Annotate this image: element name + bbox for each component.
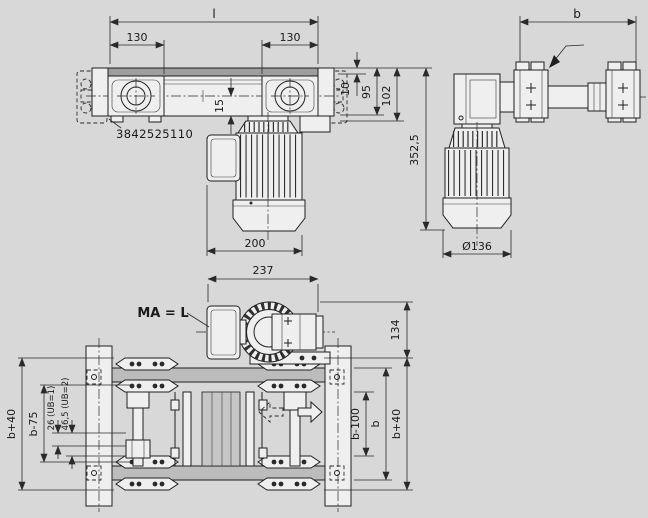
dim-10-label: 10 [339, 82, 352, 96]
drive-head-housing [300, 116, 330, 132]
side-motor [207, 112, 305, 240]
dim-ub2-label: 46,5 (UB=2) [61, 378, 71, 431]
dim-b40-right-label: b+40 [390, 409, 403, 439]
shaft-coupling [588, 83, 606, 111]
mount-plate [116, 358, 178, 370]
dim-200-label: 200 [245, 237, 266, 250]
dim-237-label: 237 [253, 264, 274, 277]
drive-shaft [548, 86, 588, 108]
dim-b-top-label: b [573, 7, 581, 21]
drawing-canvas: l 130 130 3842525110 15 200 [0, 0, 648, 518]
dim-102-label: 102 [380, 86, 393, 107]
dim-130-right-label: 130 [280, 31, 301, 44]
centre-frame [171, 392, 267, 466]
dim-134-label: 134 [389, 320, 402, 341]
mount-plate [258, 380, 320, 392]
dim-352-label: 352,5 [408, 134, 421, 166]
dim-ub1-label: 26 (UB=1) [47, 386, 57, 431]
gearbox [454, 74, 514, 124]
dim-95-label: 95 [360, 85, 373, 99]
plan-terminal-box [207, 306, 240, 359]
mount-plate [116, 380, 178, 392]
end-view: b Ø136 [443, 7, 646, 258]
belt-strip [108, 68, 318, 76]
plan-view: MA = L 237 134 b+40 b b-100 [5, 264, 413, 512]
dim-diameter: Ø136 [443, 230, 511, 258]
right-bearing-block [262, 76, 318, 122]
right-drive-shaft [284, 392, 306, 466]
mount-plate [116, 478, 178, 490]
side-view: l 130 130 3842525110 15 200 [77, 7, 445, 256]
left-drive-shaft [126, 392, 150, 466]
terminal-box [207, 135, 240, 181]
dim-b-top: b [520, 7, 636, 62]
dim-b100-label: b-100 [349, 408, 362, 440]
left-shaft-block [514, 62, 548, 122]
left-bearing-block [108, 76, 164, 122]
part-number-label: 3842525110 [116, 127, 193, 141]
left-cross-profile [86, 338, 112, 512]
dim-diameter-label: Ø136 [462, 240, 492, 253]
dim-15-label: 15 [213, 99, 226, 113]
end-motor [443, 122, 511, 246]
dim-130-left-label: 130 [127, 31, 148, 44]
dim-b40-left-label: b+40 [5, 409, 18, 439]
plan-motor-assembly [196, 302, 335, 364]
dim-l-label: l [212, 7, 215, 21]
reference-arrow [549, 45, 584, 68]
dim-b75-label: b-75 [27, 412, 40, 437]
technical-drawing: l 130 130 3842525110 15 200 [0, 0, 648, 518]
right-shaft-block [606, 62, 640, 122]
torque-label-leader [187, 313, 209, 327]
dim-b-plan-label: b [369, 420, 382, 427]
mount-plate [258, 478, 320, 490]
torque-label: MA = L [137, 306, 188, 321]
plan-gearbox [272, 314, 316, 350]
dim-stack-right: 10 95 102 352,5 [334, 52, 445, 230]
